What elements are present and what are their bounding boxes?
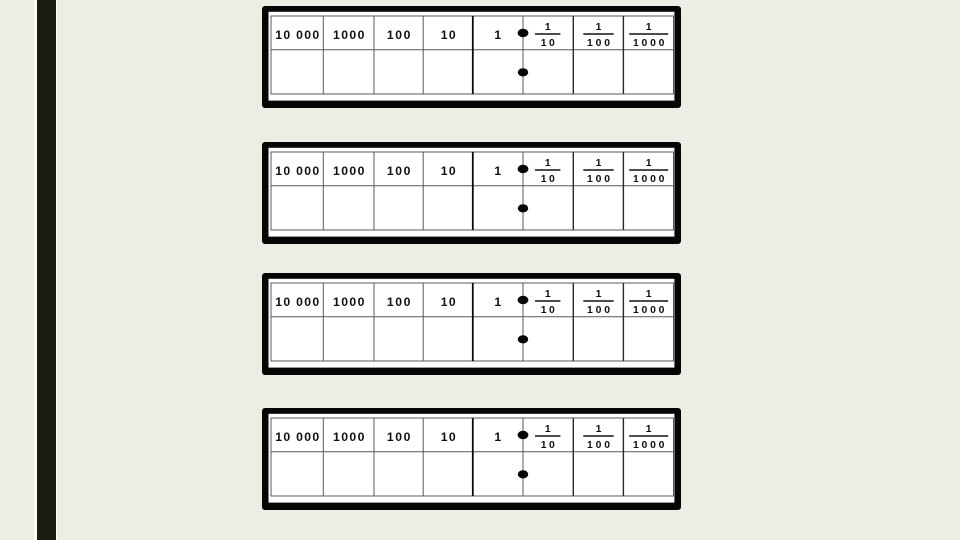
- svg-text:1000: 1000: [333, 429, 365, 443]
- svg-text:10: 10: [441, 429, 456, 443]
- svg-text:10 000: 10 000: [275, 164, 319, 178]
- svg-text:1: 1: [545, 423, 551, 434]
- svg-text:1: 1: [646, 289, 652, 300]
- svg-text:1: 1: [545, 22, 551, 33]
- svg-text:1: 1: [494, 164, 501, 178]
- svg-text:100: 100: [387, 164, 411, 178]
- svg-text:100: 100: [387, 429, 411, 443]
- svg-text:1: 1: [646, 22, 652, 33]
- svg-text:100: 100: [587, 174, 610, 185]
- svg-text:100: 100: [587, 38, 610, 49]
- svg-text:10 000: 10 000: [275, 295, 319, 309]
- svg-text:1000: 1000: [333, 28, 365, 42]
- svg-text:1: 1: [596, 158, 602, 169]
- svg-text:100: 100: [387, 28, 411, 42]
- svg-text:1000: 1000: [333, 164, 365, 178]
- svg-text:1: 1: [646, 423, 652, 434]
- svg-text:10: 10: [441, 295, 456, 309]
- svg-text:10: 10: [441, 28, 456, 42]
- svg-text:100: 100: [587, 439, 610, 450]
- svg-text:1: 1: [646, 158, 652, 169]
- svg-text:1: 1: [596, 289, 602, 300]
- svg-text:1: 1: [494, 295, 501, 309]
- svg-text:1: 1: [596, 22, 602, 33]
- svg-text:10 000: 10 000: [275, 28, 319, 42]
- svg-text:10 000: 10 000: [275, 429, 319, 443]
- svg-text:1: 1: [596, 423, 602, 434]
- svg-text:1: 1: [545, 158, 551, 169]
- svg-text:10: 10: [441, 164, 456, 178]
- svg-text:1000: 1000: [333, 295, 365, 309]
- svg-text:100: 100: [387, 295, 411, 309]
- svg-text:100: 100: [587, 305, 610, 316]
- svg-text:1: 1: [545, 289, 551, 300]
- svg-text:1: 1: [494, 429, 501, 443]
- svg-text:1: 1: [494, 28, 501, 42]
